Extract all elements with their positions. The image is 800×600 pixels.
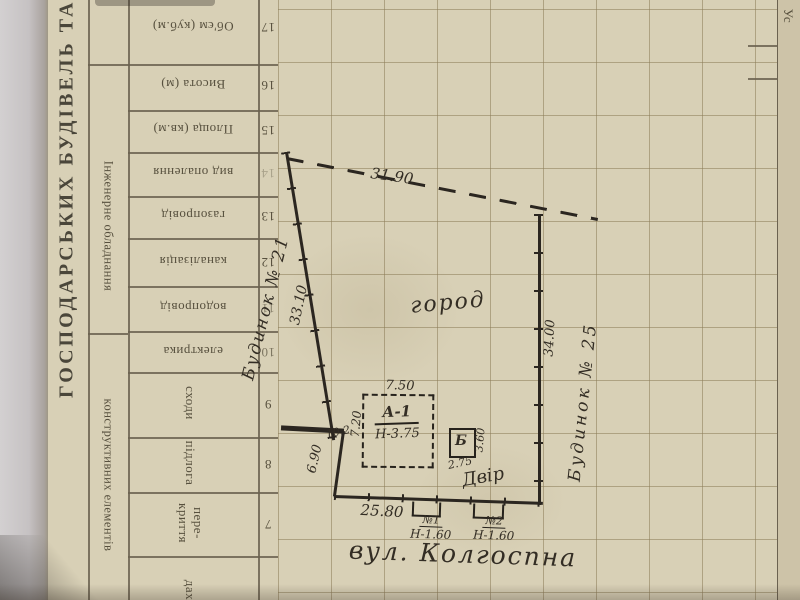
dim-bottom: 25.80 xyxy=(360,501,404,521)
row-label: сходи xyxy=(182,386,198,420)
dim-right: 34.00 xyxy=(542,319,559,357)
row-label: вид опалення xyxy=(128,164,258,180)
row-label: підлога xyxy=(182,441,198,486)
row-label: каналізація xyxy=(128,253,258,269)
band-label-construction: конструктивних елементів xyxy=(101,399,116,552)
band-border xyxy=(88,333,128,335)
row-border xyxy=(128,238,278,240)
row-number: 7 xyxy=(258,516,278,532)
row-border xyxy=(128,492,278,494)
building-b-label: Б xyxy=(455,433,467,449)
gate-2-label-group: №2 Н-1.60 xyxy=(473,512,515,543)
row-border xyxy=(128,110,278,112)
row-border xyxy=(128,286,278,288)
row-number: 8 xyxy=(258,456,278,472)
building-a-dim-side: 7.20 xyxy=(348,410,364,438)
row-number: 9 xyxy=(258,396,278,412)
building-a-dim-top: 7.50 xyxy=(385,378,414,394)
right-margin xyxy=(777,0,800,600)
row-number: 15 xyxy=(258,122,278,138)
table-border xyxy=(88,0,90,600)
row-label: Об'єм (куб.м) xyxy=(128,18,258,34)
row-number: 13 xyxy=(258,208,278,224)
row-label: водопровід xyxy=(128,299,258,315)
gate-1-number: №1 xyxy=(419,514,443,527)
building-a-height: Н-3.75 xyxy=(375,426,420,443)
corner-cell-border xyxy=(748,45,777,47)
bottom-shadow xyxy=(0,584,800,600)
form-title: ГОСПОДАРСЬКИХ БУДІВЕЛЬ ТА С xyxy=(56,0,79,398)
boundary-right-ticks xyxy=(534,214,543,505)
row-label: Площа (кв.м) xyxy=(128,121,258,137)
band-label-utilities: Інженерне обладнання xyxy=(101,161,116,292)
row-number: 14 xyxy=(258,165,278,181)
row-border xyxy=(128,196,278,198)
scanned-plan-photo: Об'єм (куб.м) Висота (м) Площа (кв.м) ви… xyxy=(0,0,800,600)
row-number: 16 xyxy=(258,77,278,93)
corner-label: Ус xyxy=(780,9,796,23)
row-label: Висота (м) xyxy=(128,76,258,92)
row-label: електрика xyxy=(128,343,258,359)
corner-cell-border xyxy=(748,78,777,80)
row-label: пере-криття xyxy=(175,496,205,550)
building-a-label: А-1 xyxy=(374,402,419,422)
row-border xyxy=(128,152,278,154)
row-border xyxy=(128,437,278,439)
band-border xyxy=(88,64,128,66)
building-a-label-group: А-1 Н-3.75 xyxy=(374,402,420,442)
row-label: газопровід xyxy=(128,207,258,223)
gate-1-label-group: №1 Н-1.60 xyxy=(410,511,452,542)
fraction-bar xyxy=(375,422,419,425)
page-edge xyxy=(0,0,48,600)
row-number: 17 xyxy=(258,19,278,35)
gate-2-number: №2 xyxy=(482,515,506,528)
top-edge-shadow xyxy=(95,0,215,6)
row-border xyxy=(128,64,278,66)
row-border xyxy=(128,556,278,558)
building-b-dim-side: 3.60 xyxy=(472,427,487,453)
